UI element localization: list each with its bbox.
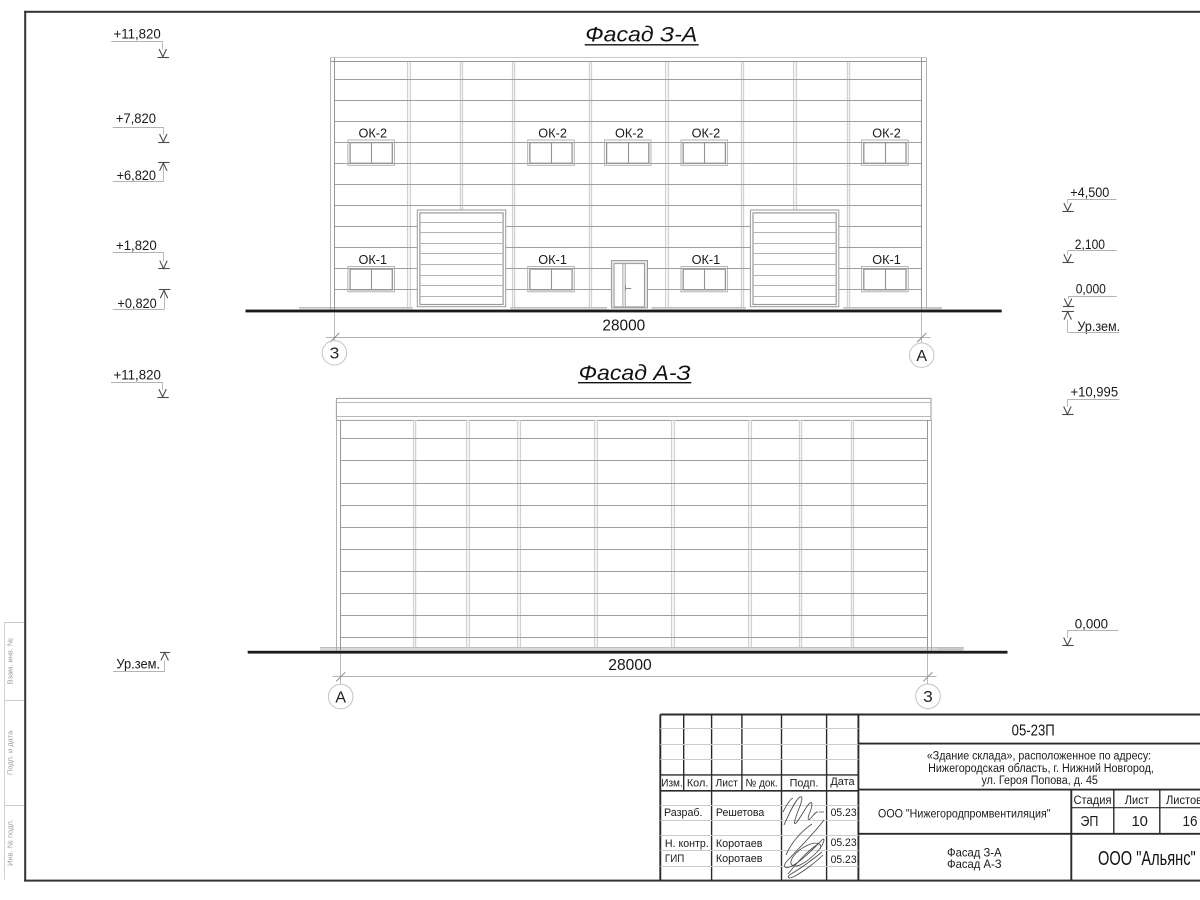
svg-text:Кол.: Кол. <box>687 778 709 790</box>
svg-text:+6,820: +6,820 <box>117 168 156 183</box>
svg-text:ОК-1: ОК-1 <box>359 252 388 267</box>
svg-text:А: А <box>916 348 927 365</box>
svg-text:Фасад З-А: Фасад З-А <box>585 23 697 46</box>
svg-text:28000: 28000 <box>608 657 652 674</box>
svg-text:ОК-2: ОК-2 <box>538 126 567 141</box>
svg-text:ОК-2: ОК-2 <box>615 126 644 141</box>
svg-text:Нижегородская область, г. Нижн: Нижегородская область, г. Нижний Новгоро… <box>928 763 1154 775</box>
svg-text:З: З <box>923 689 933 706</box>
svg-text:Лист: Лист <box>716 778 738 790</box>
svg-text:Решетова: Решетова <box>716 807 765 819</box>
svg-text:ЭП: ЭП <box>1080 813 1098 830</box>
svg-text:Фасад А-З: Фасад А-З <box>579 362 691 385</box>
svg-text:Коротаев: Коротаев <box>716 838 763 850</box>
svg-text:ОК-1: ОК-1 <box>872 252 901 267</box>
svg-text:Разраб.: Разраб. <box>664 807 703 819</box>
svg-text:Изм.: Изм. <box>661 778 683 790</box>
svg-text:ул. Героя Попова, д. 45: ул. Героя Попова, д. 45 <box>982 775 1098 787</box>
svg-text:ООО "Нижегородпромвентиляция": ООО "Нижегородпромвентиляция" <box>878 807 1051 821</box>
svg-text:Дата: Дата <box>830 776 855 788</box>
svg-text:Коротаев: Коротаев <box>716 853 763 865</box>
svg-text:+11,820: +11,820 <box>114 27 161 42</box>
svg-text:05.23: 05.23 <box>831 854 857 866</box>
svg-text:А: А <box>335 689 346 706</box>
svg-text:З: З <box>330 346 340 363</box>
svg-text:№ док.: № док. <box>746 778 778 790</box>
svg-text:+1,820: +1,820 <box>116 238 157 253</box>
svg-text:Подп. и дата: Подп. и дата <box>6 730 15 775</box>
svg-text:05.23: 05.23 <box>831 807 857 819</box>
svg-text:+10,995: +10,995 <box>1071 385 1119 400</box>
svg-text:05.23: 05.23 <box>831 837 857 849</box>
svg-text:Ур.зем.: Ур.зем. <box>1077 319 1120 334</box>
svg-text:ОК-2: ОК-2 <box>359 126 388 141</box>
svg-text:Листов: Листов <box>1166 795 1200 807</box>
svg-text:28000: 28000 <box>602 317 645 334</box>
svg-text:Фасад А-З: Фасад А-З <box>947 857 1002 871</box>
svg-text:Лист: Лист <box>1125 795 1150 807</box>
svg-text:2,100: 2,100 <box>1075 237 1105 252</box>
svg-text:«Здание склада», расположенное: «Здание склада», расположенное по адресу… <box>927 751 1151 763</box>
svg-text:16: 16 <box>1183 813 1198 830</box>
svg-text:Стадия: Стадия <box>1074 795 1112 807</box>
svg-text:ОК-2: ОК-2 <box>872 126 901 141</box>
svg-text:ООО "Альянс": ООО "Альянс" <box>1098 848 1196 870</box>
svg-text:+7,820: +7,820 <box>116 111 156 126</box>
svg-text:0,000: 0,000 <box>1076 282 1106 297</box>
svg-text:ГИП: ГИП <box>665 853 684 865</box>
svg-text:ОК-2: ОК-2 <box>692 126 721 141</box>
svg-text:Взам. инв. №: Взам. инв. № <box>6 638 15 684</box>
svg-text:ОК-1: ОК-1 <box>538 252 567 267</box>
svg-text:+11,820: +11,820 <box>114 367 161 382</box>
svg-text:10: 10 <box>1131 813 1148 830</box>
svg-text:+0,820: +0,820 <box>117 296 156 311</box>
svg-text:Инв. № подл.: Инв. № подл. <box>6 819 15 866</box>
svg-text:05-23П: 05-23П <box>1012 722 1055 739</box>
svg-text:Подп.: Подп. <box>790 777 819 789</box>
svg-text:Ур.зем.: Ур.зем. <box>116 656 160 671</box>
svg-text:ОК-1: ОК-1 <box>692 252 721 267</box>
svg-text:+4,500: +4,500 <box>1070 185 1109 200</box>
svg-text:0,000: 0,000 <box>1075 616 1108 631</box>
svg-text:Н. контр.: Н. контр. <box>665 838 709 850</box>
